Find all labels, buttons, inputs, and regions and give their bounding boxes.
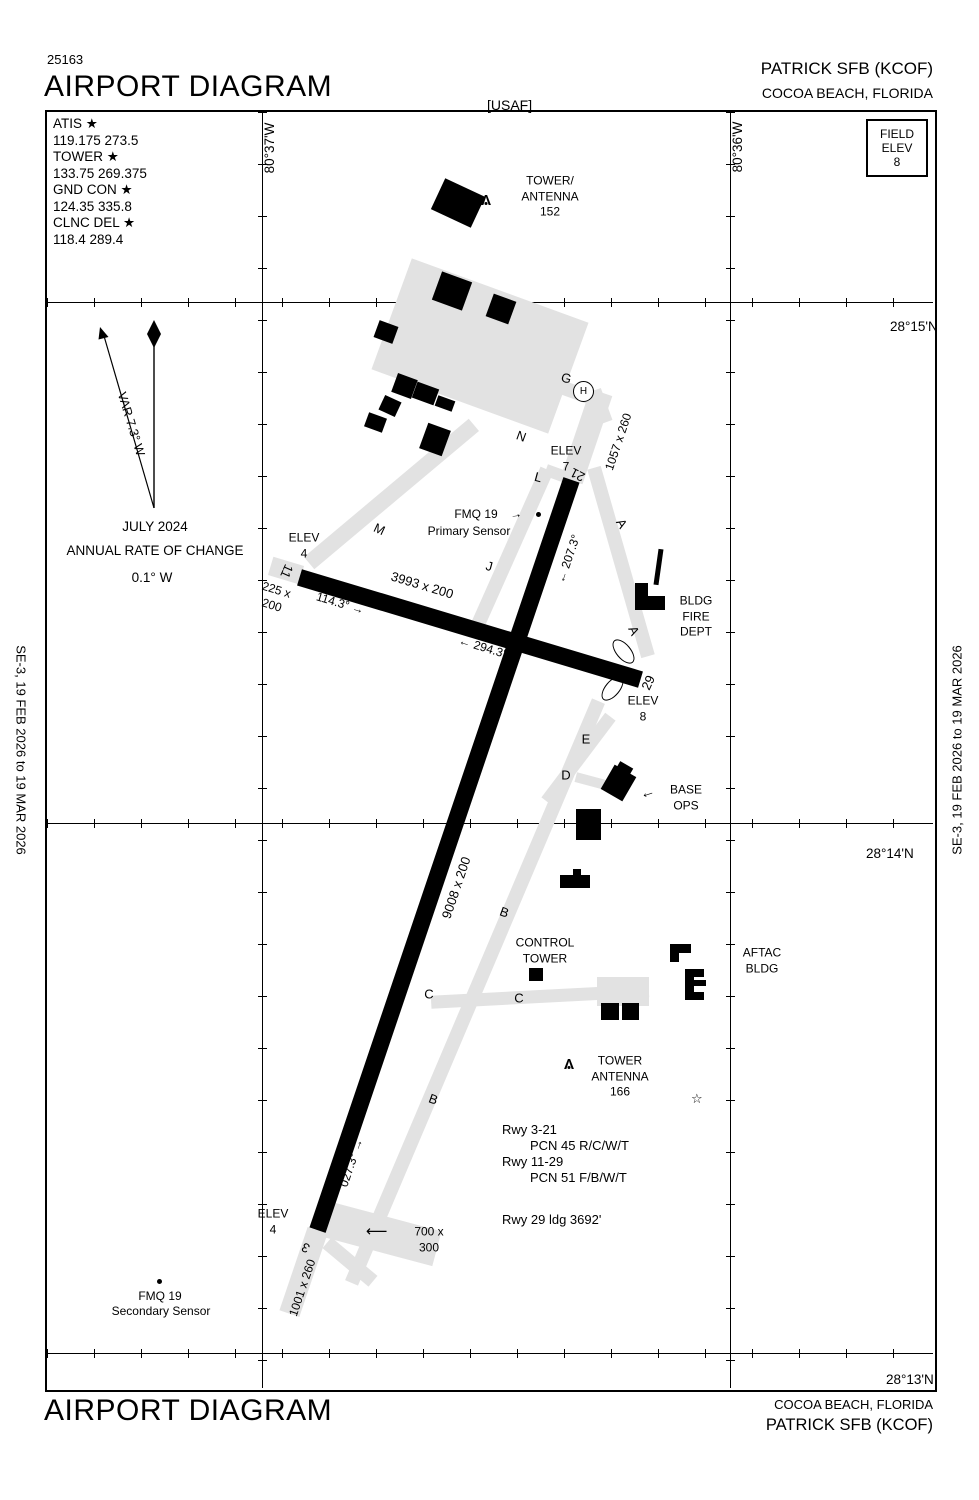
- tower-antenna-166-label: TOWER ANTENNA 166: [591, 1054, 648, 1101]
- building: [573, 869, 581, 876]
- rwy-29-ldg-note: Rwy 29 ldg 3692': [502, 1212, 601, 1229]
- lat-label-15: 28°15'N: [890, 318, 938, 336]
- tower-value: 133.75 269.375: [53, 166, 147, 183]
- fire-l1: BLDG: [680, 594, 713, 610]
- field-elev-l2: ELEV: [882, 141, 913, 155]
- gndcon-value: 124.35 335.8: [53, 199, 147, 216]
- aftac-building: [693, 980, 706, 986]
- tower-label: TOWER ★: [53, 149, 147, 166]
- elev4b-word: ELEV: [258, 1206, 289, 1222]
- airport-name-top: PATRICK SFB (KCOF): [761, 58, 933, 80]
- tower166-l1: TOWER: [591, 1054, 648, 1070]
- taxiway-label-e: E: [582, 732, 591, 749]
- variation-date: JULY 2024: [122, 518, 188, 536]
- arrow-icon: [509, 506, 523, 523]
- base-ops-label: BASE OPS: [670, 782, 702, 813]
- fmq19-secondary-dot: [157, 1279, 162, 1284]
- building: [576, 809, 601, 840]
- fmq19-primary-dot: [536, 512, 541, 517]
- pad700-l2: 300: [414, 1240, 443, 1256]
- lon-label-36: 80°36'W: [729, 122, 747, 173]
- taxiway-label-c: C: [514, 991, 523, 1008]
- field-elev-l1: FIELD: [880, 127, 914, 141]
- helipad-h: H: [580, 386, 587, 397]
- airport-name-bottom: PATRICK SFB (KCOF): [766, 1415, 933, 1436]
- page-title: AIRPORT DIAGRAM: [44, 70, 332, 104]
- elev4b-value: 4: [258, 1222, 289, 1238]
- fmq19-secondary-name: FMQ 19: [138, 1289, 181, 1305]
- gndcon-label: GND CON ★: [53, 182, 147, 199]
- taxiway-label-c: C: [424, 987, 433, 1004]
- aftac-label: AFTAC BLDG: [743, 945, 781, 976]
- ctrl-l2: TOWER: [516, 951, 575, 967]
- antenna-166-icon: Λ: [564, 1057, 574, 1072]
- atis-label: ATIS ★: [53, 116, 147, 133]
- elev4-value: 4: [289, 546, 320, 562]
- gridline-lat13: [47, 1353, 933, 1354]
- fire-l3: DEPT: [680, 625, 713, 641]
- frequency-box: ATIS ★ 119.175 273.5 TOWER ★ 133.75 269.…: [53, 116, 147, 248]
- tower152-l1: TOWER/: [521, 174, 578, 190]
- field-elev-box: FIELD ELEV 8: [866, 119, 928, 177]
- aftac-l2: BLDG: [743, 961, 781, 977]
- fire-l2: FIRE: [680, 609, 713, 625]
- aftac-building: [685, 969, 704, 977]
- chart-number: 25163: [47, 52, 83, 69]
- tower152-l2: ANTENNA: [521, 189, 578, 205]
- pad700-l1: 700 x: [414, 1224, 443, 1240]
- antenna-152-icon: Λ: [481, 193, 491, 208]
- clncdel-label: CLNC DEL ★: [53, 215, 147, 232]
- city-name-bottom: COCOA BEACH, FLORIDA: [774, 1397, 933, 1414]
- lon-label-37: 80°37'W: [261, 123, 279, 174]
- elev4-word: ELEV: [289, 530, 320, 546]
- atis-value: 119.175 273.5: [53, 133, 147, 150]
- rwy-11-29-id: Rwy 11-29: [502, 1154, 629, 1170]
- elev8-value: 8: [628, 709, 659, 725]
- elev-4-top-label: ELEV 4: [289, 530, 320, 561]
- tower166-l2: ANTENNA: [591, 1069, 648, 1085]
- star-icon: ☆: [691, 1092, 703, 1105]
- tower-antenna-152-label: TOWER/ ANTENNA 152: [521, 174, 578, 221]
- gridline-lat14: [47, 823, 933, 824]
- airport-diagram-page: 25163 AIRPORT DIAGRAM [USAF] PATRICK SFB…: [0, 0, 979, 1500]
- control-tower-building: [529, 968, 543, 981]
- elev-4-bottom-label: ELEV 4: [258, 1206, 289, 1237]
- rwy-3-21-id: Rwy 3-21: [502, 1122, 629, 1138]
- runway-data-block: Rwy 3-21 PCN 45 R/C/W/T Rwy 11-29 PCN 51…: [502, 1122, 629, 1186]
- arrow-icon: [366, 1222, 388, 1242]
- lat-label-14: 28°14'N: [866, 845, 914, 863]
- helipad-icon: H: [573, 381, 594, 402]
- baseops-l1: BASE: [670, 782, 702, 798]
- annual-rate-label: ANNUAL RATE OF CHANGE: [66, 542, 243, 560]
- clncdel-value: 118.4 289.4: [53, 232, 147, 249]
- footer-title: AIRPORT DIAGRAM: [44, 1394, 332, 1428]
- south-apron-building: [601, 1003, 619, 1020]
- elev-8-label: ELEV 8: [628, 693, 659, 724]
- aftac-l1: AFTAC: [743, 945, 781, 961]
- taxiway-label-d: D: [561, 768, 570, 785]
- fmq19-primary-desc: Primary Sensor: [428, 524, 511, 540]
- tower166-l3: 166: [591, 1085, 648, 1101]
- fmq19-primary-name: FMQ 19: [454, 507, 497, 523]
- ctrl-l1: CONTROL: [516, 935, 575, 951]
- margin-right-edition: SE-3, 19 FEB 2026 to 19 MAR 2026: [950, 645, 967, 855]
- pad-700x300-label: 700 x 300: [414, 1224, 443, 1255]
- annual-rate-value: 0.1° W: [132, 569, 173, 587]
- compass-rose: [85, 318, 225, 518]
- aftac-building: [685, 992, 704, 1000]
- fire-dept-building: [635, 596, 665, 610]
- fmq19-secondary-desc: Secondary Sensor: [112, 1304, 211, 1320]
- south-apron: [597, 977, 649, 1006]
- aftac-building: [670, 944, 679, 962]
- elev8-word: ELEV: [628, 693, 659, 709]
- south-apron-building: [622, 1003, 639, 1020]
- margin-left-edition: SE-3, 19 FEB 2026 to 19 MAR 2026: [12, 645, 29, 855]
- field-elev-value: 8: [894, 155, 901, 169]
- tower152-l3: 152: [521, 205, 578, 221]
- rwy-11-29-pcn: PCN 51 F/B/W/T: [502, 1170, 629, 1186]
- rwy-3-21-pcn: PCN 45 R/C/W/T: [502, 1138, 629, 1154]
- city-name-top: COCOA BEACH, FLORIDA: [762, 84, 933, 102]
- fire-dept-label: BLDG FIRE DEPT: [680, 594, 713, 641]
- gridline-lon37: [262, 112, 263, 1388]
- lat-label-13: 28°13'N: [886, 1371, 934, 1389]
- baseops-l2: OPS: [670, 798, 702, 814]
- gridline-lon36: [730, 112, 731, 1388]
- control-tower-label: CONTROL TOWER: [516, 935, 575, 966]
- elev7-word: ELEV: [551, 443, 582, 459]
- building: [560, 875, 590, 888]
- fire-dept-building: [635, 583, 648, 597]
